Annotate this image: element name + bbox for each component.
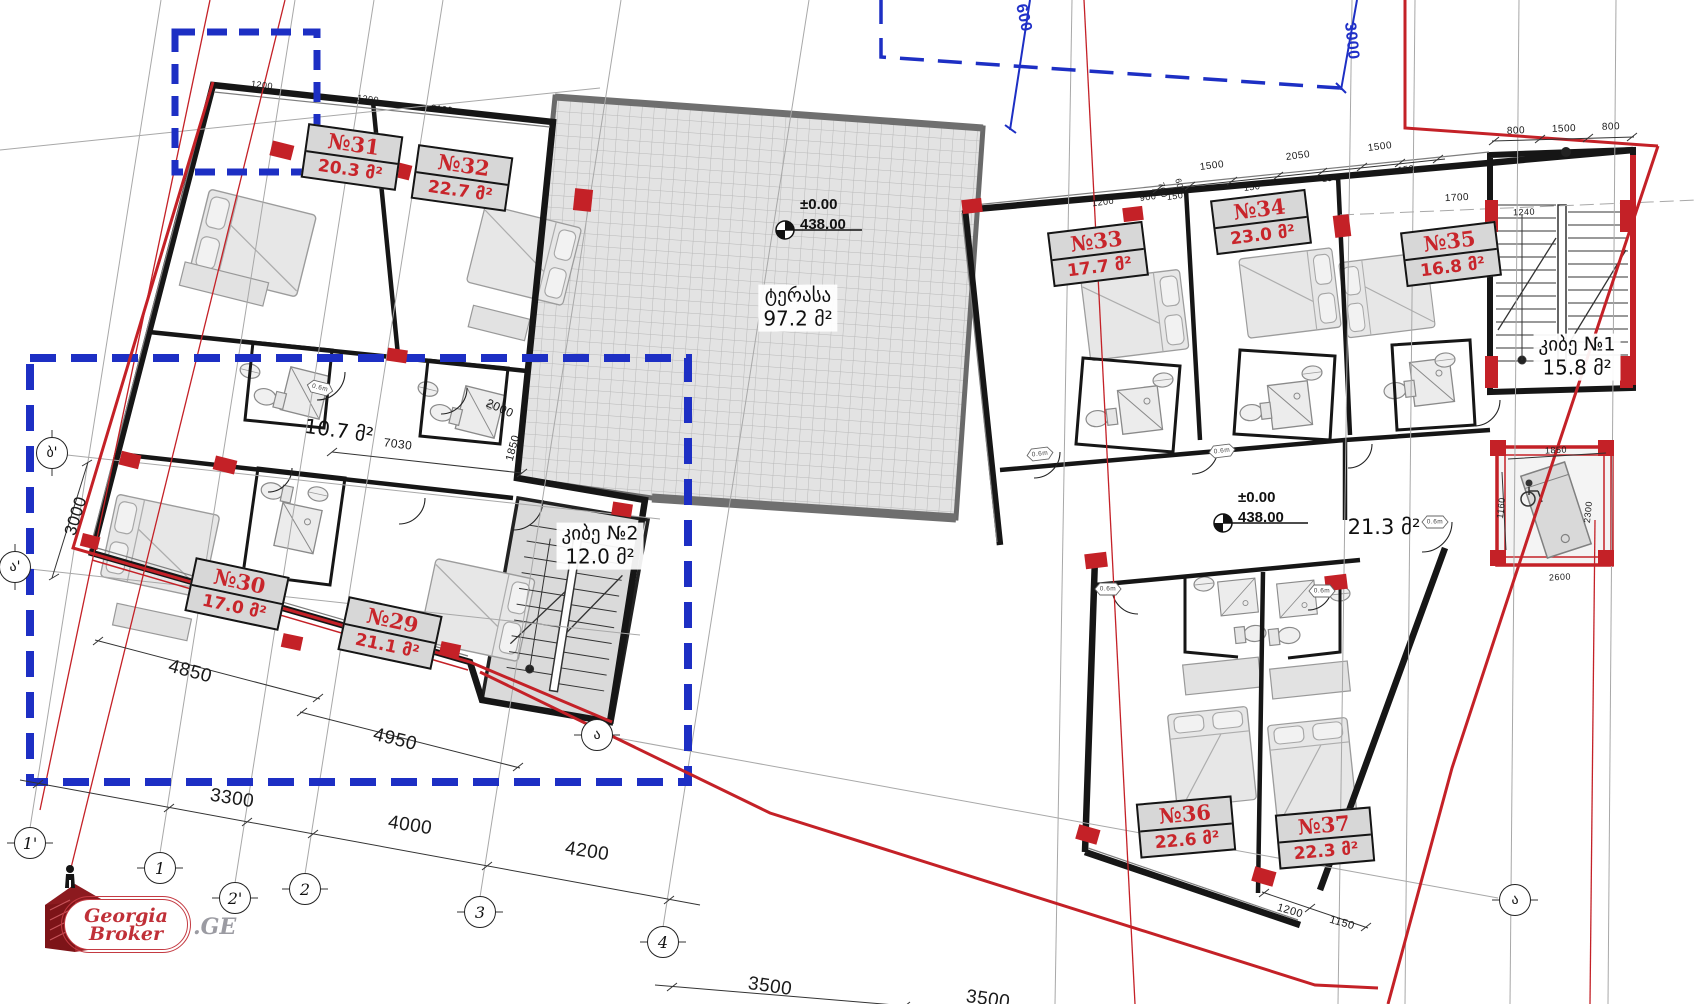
axis-bubble-2: 2 (289, 873, 321, 905)
elevation-marker-terrace: ±0.00 438.00 (800, 197, 866, 233)
stair1-label: კიბე №1 15.8 მ² (1534, 334, 1621, 381)
terrace (517, 97, 983, 518)
terrace-area: 97.2 მ² (763, 307, 832, 330)
dim-900: 900 (1139, 191, 1157, 203)
elevation-datum: 438.00 (800, 217, 866, 233)
dim-1700: 1700 (1445, 192, 1470, 204)
dim-top-150b: 150 (1243, 181, 1261, 193)
room-label-35: №35 16.8 მ² (1400, 221, 1502, 287)
room-label-37: №37 22.3 მ² (1275, 806, 1375, 869)
logo-person-icon (65, 865, 75, 888)
dim-elev-2600: 2600 (1549, 571, 1572, 582)
floor-plan: №31 20.3 მ² №32 22.7 მ² №30 17.0 მ² №29 … (0, 0, 1698, 1004)
hall-right-area: 21.3 მ² (1343, 514, 1426, 540)
dim-top-150c: 150 (1321, 172, 1339, 184)
elevation-datum: 438.00 (1238, 510, 1304, 526)
blue-dashed-north-line (881, 0, 1340, 88)
dim-1240: 1240 (1513, 207, 1535, 218)
axis-bubble-3: 3 (464, 896, 496, 928)
stair2-area: 12.0 მ² (562, 545, 639, 568)
dim-blue-3000: 3000 (1340, 21, 1362, 60)
elevation-level: ±0.00 (1238, 490, 1304, 506)
door-tag: 0.6m (1314, 588, 1330, 595)
axis-bubble-1p: 1' (14, 827, 46, 859)
axis-bubble-ap: ა' (0, 551, 31, 583)
elevation-marker-hall: ±0.00 438.00 (1238, 490, 1304, 526)
terrace-name: ტერასა (763, 286, 832, 308)
axis-bubble-1: 1 (144, 852, 176, 884)
room-label-33: №33 17.7 მ² (1047, 221, 1149, 287)
logo-word2: Broker (89, 925, 163, 943)
dim-stair-800b: 800 (1602, 121, 1621, 133)
stair2-label: კიბე №2 12.0 მ² (557, 523, 644, 570)
stair1-area: 15.8 მ² (1539, 356, 1616, 379)
stair1-name: კიბე №1 (1539, 335, 1616, 357)
stair2-name: კიბე №2 (562, 524, 639, 546)
room-label-36: №36 22.6 მ² (1136, 795, 1236, 858)
axis-bubble-bp: ბ' (36, 437, 68, 469)
terrace-label: ტერასა 97.2 მ² (758, 285, 837, 332)
room-label-34: №34 23.0 მ² (1210, 189, 1312, 255)
axis-bubble-a-left: ა (581, 719, 613, 751)
dim-stair-1500: 1500 (1552, 123, 1577, 135)
dim-stair-800a: 800 (1507, 125, 1526, 137)
elevation-level: ±0.00 (800, 197, 866, 213)
dim-top-150d: 150 (1397, 163, 1415, 175)
logo-georgia-broker: Georgia Broker (64, 899, 188, 950)
logo-domain-suffix: .GE (193, 914, 236, 940)
dim-elev-1850: 1850 (1545, 444, 1568, 455)
door-tag: 0.6m (1427, 519, 1443, 526)
door-tag: 0.6m (1100, 586, 1116, 593)
axis-bubble-a-right: ა (1499, 884, 1531, 916)
logo-word1: Georgia (84, 907, 168, 925)
plan-linework (0, 0, 1698, 1004)
axis-bubble-4: 4 (647, 926, 679, 958)
axis-bubble-2p: 2' (219, 882, 251, 914)
